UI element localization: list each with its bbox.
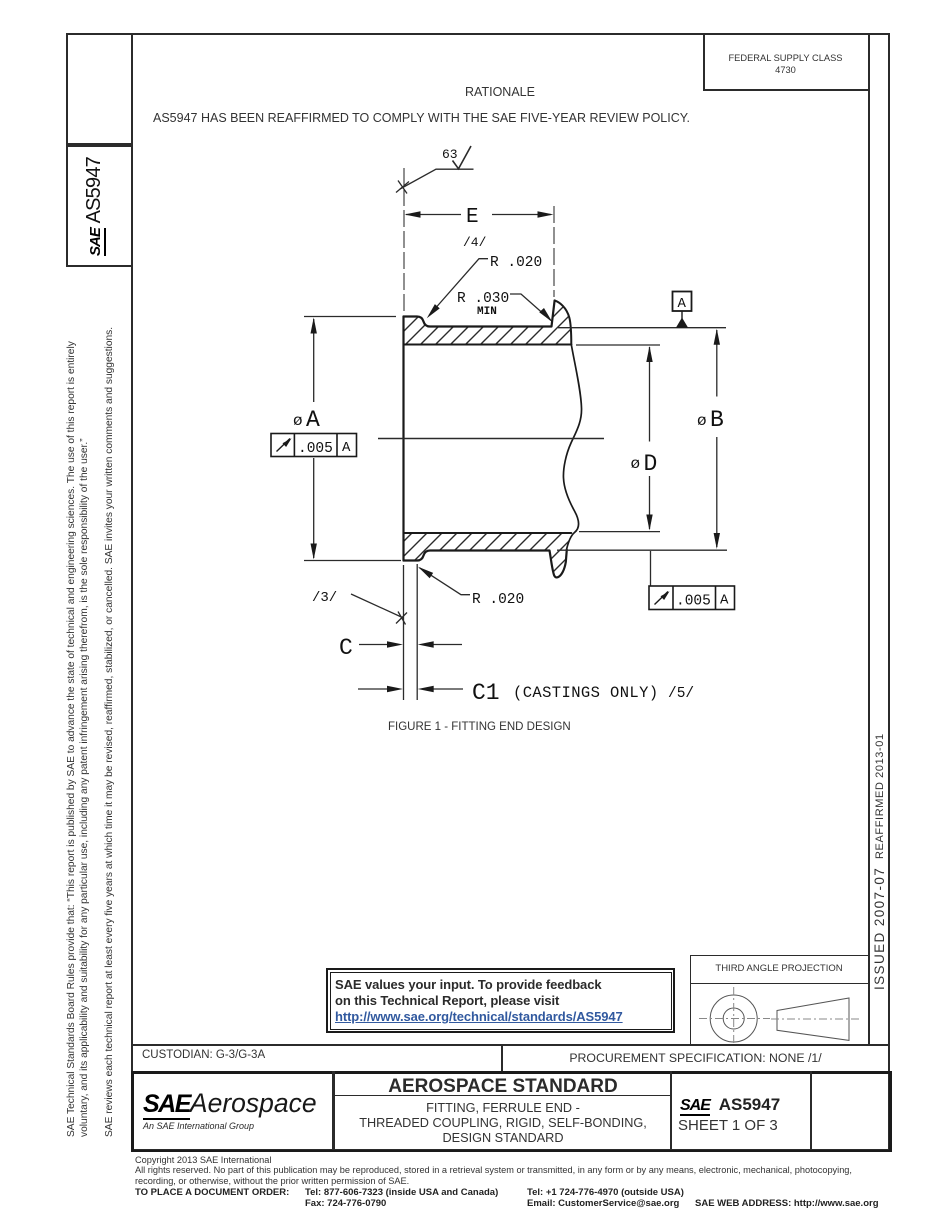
svg-text:/4/: /4/: [463, 235, 487, 250]
svg-text:A: A: [678, 296, 687, 312]
svg-text:C: C: [339, 635, 353, 661]
svg-text:A: A: [306, 407, 320, 433]
svg-text:MIN: MIN: [477, 306, 497, 318]
svg-text:(CASTINGS ONLY): (CASTINGS ONLY): [513, 684, 659, 702]
svg-text:/5/: /5/: [668, 686, 694, 702]
svg-text:A: A: [342, 440, 351, 456]
svg-text:B: B: [710, 407, 724, 433]
svg-text:.005: .005: [676, 594, 711, 610]
svg-text:ø: ø: [697, 412, 707, 430]
svg-text:ø: ø: [631, 455, 641, 473]
svg-text:63: 63: [442, 147, 458, 162]
svg-text:A: A: [720, 593, 729, 609]
svg-text:/3/: /3/: [312, 590, 337, 606]
svg-text:D: D: [644, 451, 658, 477]
svg-text:R .030: R .030: [457, 291, 509, 307]
svg-text:R .020: R .020: [472, 592, 524, 608]
svg-text:C1: C1: [472, 680, 500, 706]
svg-text:ø: ø: [293, 412, 303, 430]
svg-text:R .020: R .020: [490, 255, 542, 271]
svg-text:.005: .005: [298, 441, 333, 457]
svg-text:E: E: [466, 206, 479, 229]
